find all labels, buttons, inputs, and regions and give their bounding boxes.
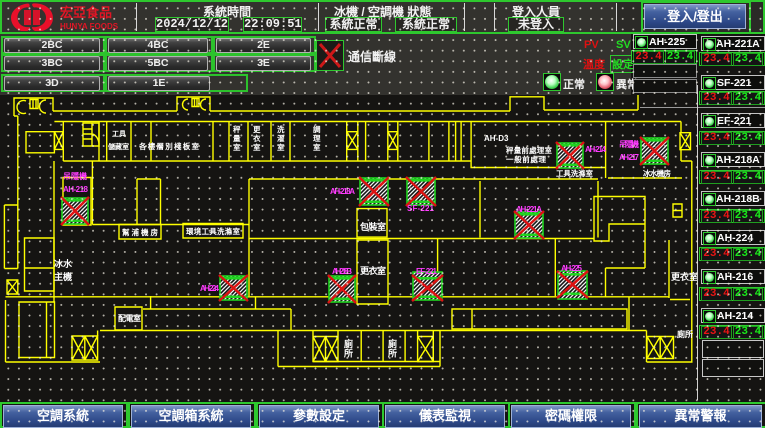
svg-text:AH-225: AH-225 xyxy=(561,264,583,273)
svg-text:更衣室: 更衣室 xyxy=(671,271,698,282)
svg-text:包裝室: 包裝室 xyxy=(359,221,386,232)
svg-text:各樓層別棧板室: 各樓層別棧板室 xyxy=(138,141,200,151)
svg-text:吊隱機: 吊隱機 xyxy=(619,139,639,149)
svg-text:秤量室: 秤量室 xyxy=(233,124,241,152)
svg-text:AH-218: AH-218 xyxy=(63,185,89,194)
svg-text:環境工具洗滌室: 環境工具洗滌室 xyxy=(186,226,241,236)
svg-text:宏亞食品: 宏亞食品 xyxy=(60,5,112,20)
svg-text:洗濯室: 洗濯室 xyxy=(277,124,285,152)
svg-text:主機: 主機 xyxy=(54,271,72,282)
svg-text:AH-218B: AH-218B xyxy=(332,267,352,276)
svg-text:更衣室: 更衣室 xyxy=(360,265,386,276)
svg-text:冰水: 冰水 xyxy=(54,258,73,269)
svg-text:儲藏室: 儲藏室 xyxy=(107,142,129,151)
svg-text:冰水機房: 冰水機房 xyxy=(643,168,672,178)
svg-text:AH-218A: AH-218A xyxy=(330,187,355,196)
svg-text:調理室: 調理室 xyxy=(313,124,321,152)
svg-text:吊隱機: 吊隱機 xyxy=(63,171,87,181)
svg-text:工具洗滌室: 工具洗滌室 xyxy=(556,168,594,178)
svg-text:AH-224: AH-224 xyxy=(200,284,220,293)
svg-text:幫浦機房: 幫浦機房 xyxy=(122,227,159,237)
svg-text:AH-214: AH-214 xyxy=(585,145,607,154)
svg-text:AH-217: AH-217 xyxy=(619,153,640,162)
svg-text:廁所: 廁所 xyxy=(677,329,693,339)
svg-text:SF-221: SF-221 xyxy=(407,204,435,213)
svg-text:更衣室: 更衣室 xyxy=(253,125,261,152)
svg-text:廁所: 廁所 xyxy=(388,338,397,359)
svg-text:配電室: 配電室 xyxy=(118,313,141,323)
svg-text:廁所: 廁所 xyxy=(344,338,353,359)
svg-text:一般前處理: 一般前處理 xyxy=(506,154,547,164)
svg-text:工具: 工具 xyxy=(112,129,126,138)
svg-text:AH-D3: AH-D3 xyxy=(484,134,509,143)
svg-text:EF-221: EF-221 xyxy=(416,267,438,276)
svg-text:HUNYA FOODS: HUNYA FOODS xyxy=(60,22,119,31)
svg-text:AH-221A: AH-221A xyxy=(516,205,542,214)
svg-text:秤量前處理室: 秤量前處理室 xyxy=(506,145,553,155)
